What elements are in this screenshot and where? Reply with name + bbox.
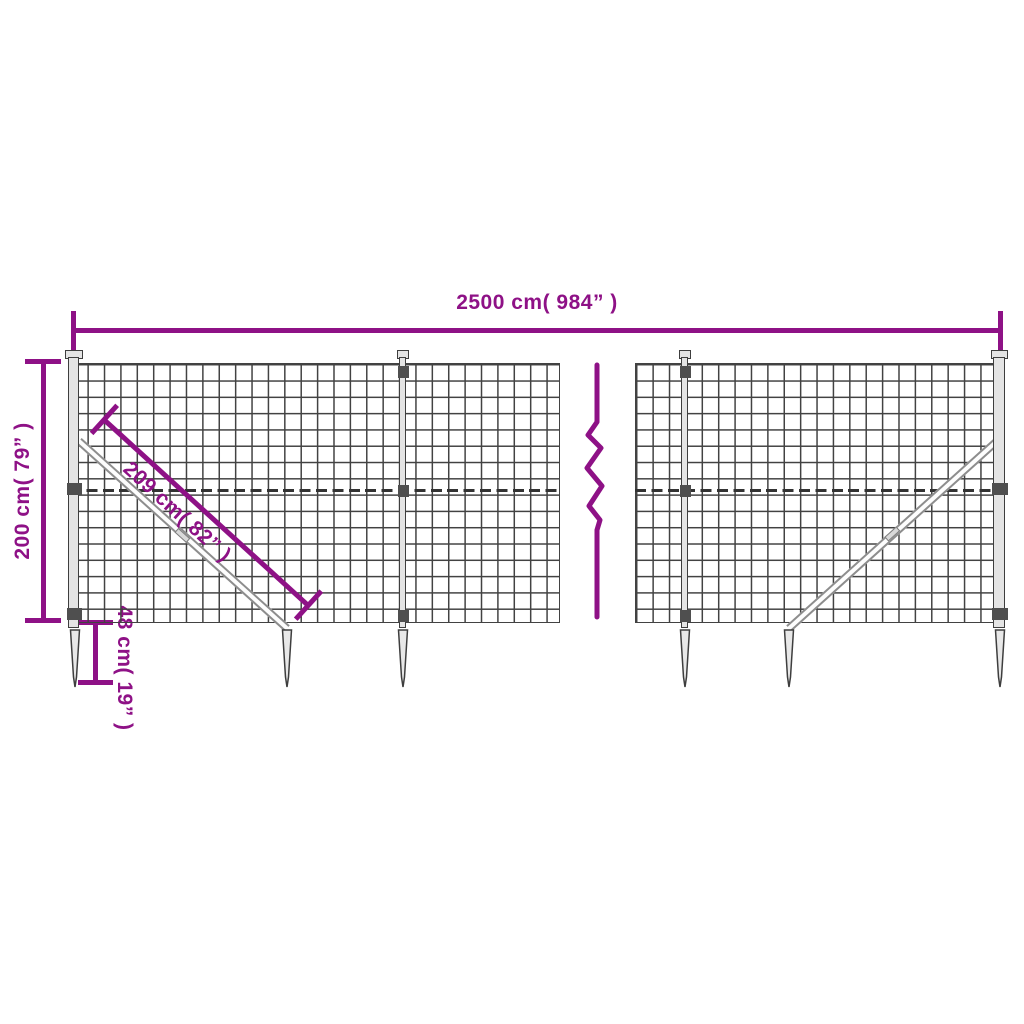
- post-clip: [398, 610, 409, 622]
- post-clip: [398, 366, 409, 378]
- post-clip: [680, 366, 691, 378]
- spike-length-tick-bottom: [78, 680, 113, 685]
- total-width-dimension-line: [73, 328, 1001, 333]
- fence-height-tick-top: [25, 359, 61, 364]
- fence-post-middle-1: [399, 357, 406, 628]
- fence-height-tick-bottom: [25, 618, 61, 623]
- ground-spike: [396, 629, 410, 689]
- ground-spike: [280, 629, 294, 689]
- post-clip: [67, 483, 82, 495]
- fence-post-middle-2: [681, 357, 688, 628]
- fence-post-right-end: [993, 357, 1005, 628]
- fence-dimension-diagram: 2500 cm( 984” ) 200 cm( 79” ) 48 cm( 19”…: [0, 0, 1024, 1024]
- fence-post-left-end: [68, 357, 79, 628]
- ground-spike: [678, 629, 692, 689]
- ground-spike: [68, 629, 82, 689]
- post-clip: [680, 610, 691, 622]
- ground-spike: [782, 629, 796, 689]
- post-clip: [398, 485, 409, 497]
- post-clip: [992, 608, 1008, 620]
- fence-height-label: 200 cm( 79” ): [8, 351, 38, 631]
- fence-height-dimension-line: [41, 361, 46, 622]
- post-clip: [67, 608, 82, 620]
- total-width-tick-right: [998, 311, 1003, 350]
- post-clip: [992, 483, 1008, 495]
- total-width-label: 2500 cm( 984” ): [456, 288, 618, 318]
- zigzag-break-line-icon: [583, 360, 613, 622]
- ground-spike: [993, 629, 1007, 689]
- post-clip: [680, 485, 691, 497]
- spike-length-dimension-line: [93, 622, 98, 684]
- total-width-tick-left: [71, 311, 76, 350]
